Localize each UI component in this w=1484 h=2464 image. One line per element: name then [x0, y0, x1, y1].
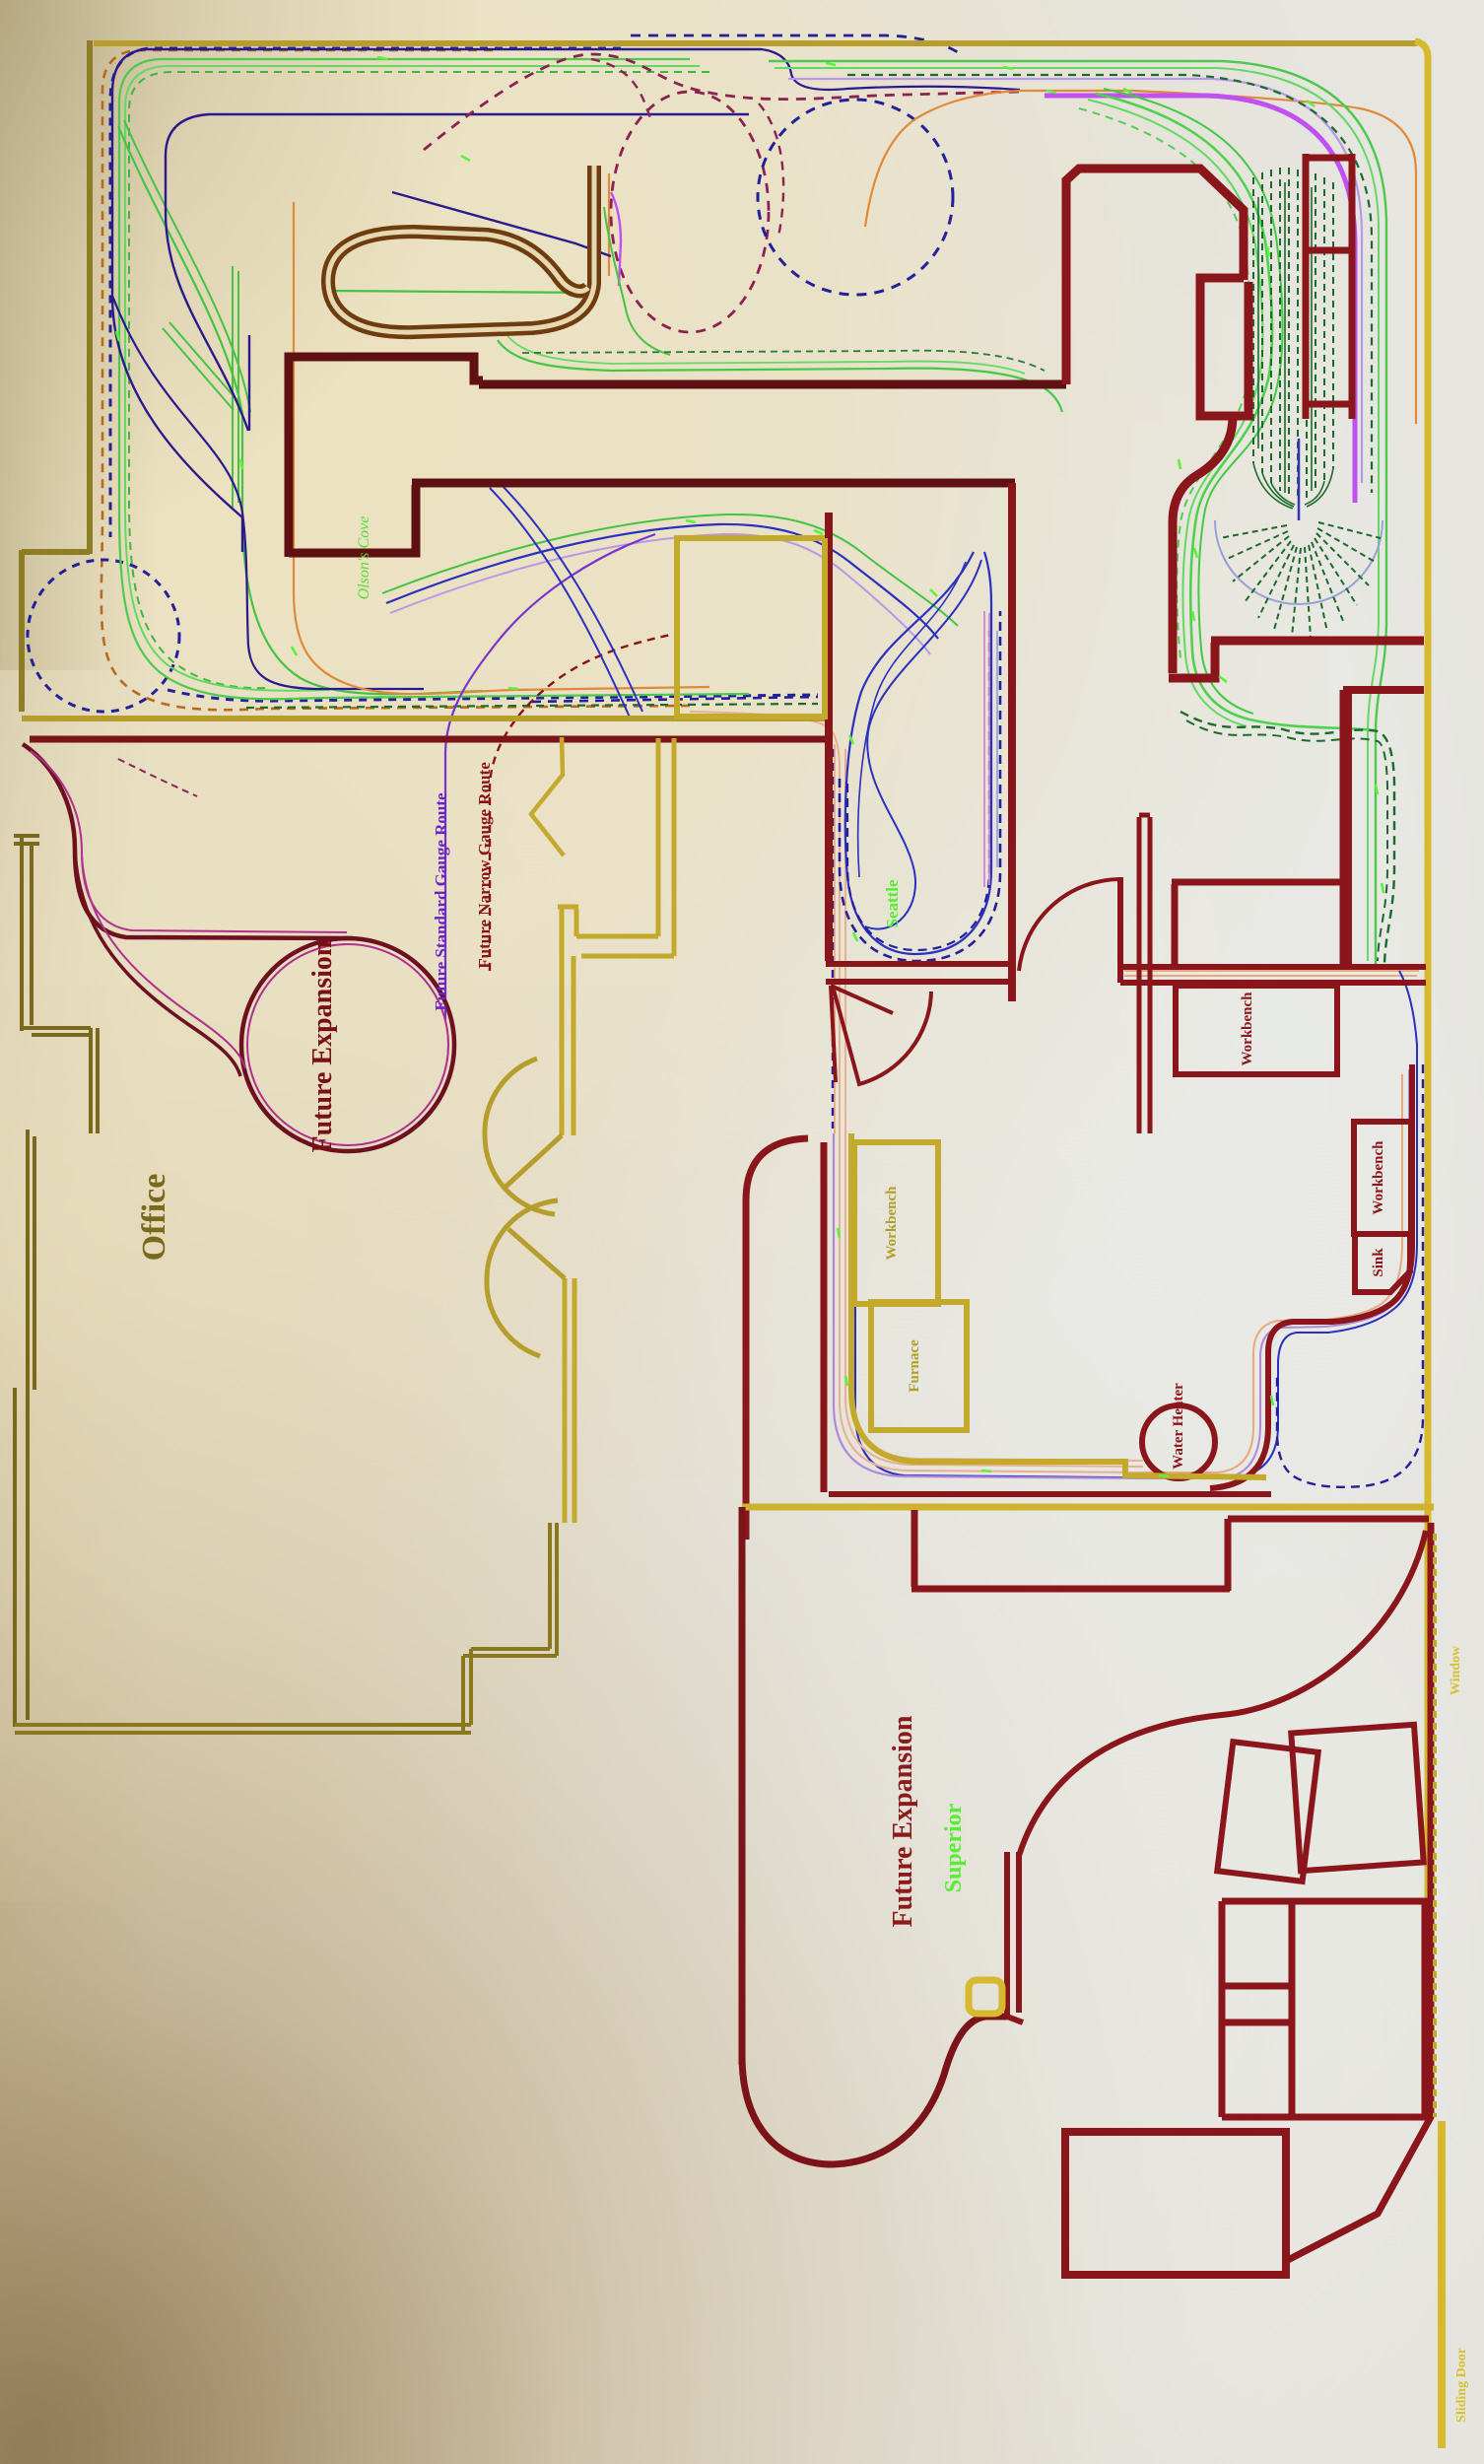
svg-text:Future Expansion: Future Expansion	[888, 1715, 918, 1927]
svg-text:Workbench: Workbench	[1371, 1140, 1386, 1215]
svg-text:Superior: Superior	[941, 1803, 967, 1892]
svg-text:Window: Window	[1449, 1645, 1463, 1695]
svg-text:Water Heater: Water Heater	[1171, 1383, 1186, 1470]
svg-text:Future Standard Gauge Route: Future Standard Gauge Route	[432, 792, 450, 1011]
svg-text:Sink: Sink	[1371, 1248, 1386, 1277]
svg-text:Workbench: Workbench	[1240, 992, 1255, 1066]
svg-text:Olson's Cove: Olson's Cove	[356, 516, 372, 600]
svg-text:Office: Office	[136, 1174, 172, 1262]
svg-text:Future Expansion: Future Expansion	[307, 940, 338, 1152]
svg-text:Furnace: Furnace	[907, 1339, 922, 1393]
svg-text:Future Narrow Gauge Route: Future Narrow Gauge Route	[475, 762, 494, 969]
svg-text:Seattle: Seattle	[883, 879, 902, 928]
svg-text:Sliding Door: Sliding Door	[1454, 2348, 1469, 2423]
svg-text:Workbench: Workbench	[884, 1186, 900, 1261]
